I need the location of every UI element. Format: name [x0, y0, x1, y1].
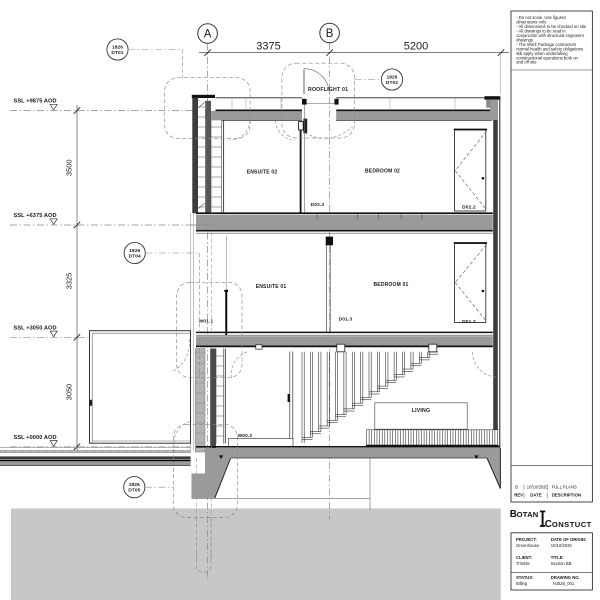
- svg-text:10/10/2020: 10/10/2020: [551, 543, 573, 548]
- svg-text:BEDROOM 01: BEDROOM 01: [373, 282, 408, 288]
- svg-text:FULL PLANS: FULL PLANS: [552, 485, 577, 490]
- svg-text:3375: 3375: [256, 40, 280, 52]
- svg-text:PROJECT:: PROJECT:: [516, 537, 537, 542]
- svg-text:SSL +9875 AOD: SSL +9875 AOD: [14, 99, 57, 105]
- svg-text:ENSUITE 02: ENSUITE 02: [247, 170, 278, 176]
- svg-text:C: C: [545, 519, 552, 530]
- svg-text:1826: 1826: [386, 74, 397, 80]
- svg-text:D01.2: D01.2: [462, 319, 476, 325]
- svg-text:LIVING: LIVING: [412, 408, 431, 414]
- svg-text:OTAN: OTAN: [517, 510, 539, 519]
- svg-text:Section BB: Section BB: [551, 561, 572, 566]
- svg-text:10/10/2020: 10/10/2020: [527, 485, 549, 490]
- svg-text:1826: 1826: [129, 248, 140, 254]
- svg-text:SSL +0000 AOD: SSL +0000 AOD: [14, 435, 57, 441]
- svg-text:SSL +3050 AOD: SSL +3050 AOD: [14, 325, 57, 331]
- svg-text:DESCRIPTION: DESCRIPTION: [552, 493, 581, 498]
- svg-text:DT01: DT01: [111, 50, 123, 56]
- svg-text:Billing: Billing: [516, 581, 528, 586]
- svg-text:ENSUITE 01: ENSUITE 01: [256, 284, 287, 290]
- svg-text:Trimble: Trimble: [516, 561, 530, 566]
- svg-text:1826: 1826: [129, 482, 140, 488]
- svg-text:3500: 3500: [65, 159, 74, 176]
- svg-text:3325: 3325: [65, 273, 74, 290]
- svg-text:DRAWING NO.: DRAWING NO.: [551, 575, 580, 580]
- svg-text:B: B: [326, 28, 334, 40]
- svg-text:D02.2: D02.2: [462, 204, 476, 210]
- svg-text:DT02: DT02: [386, 80, 398, 86]
- svg-text:and off site: and off site: [516, 60, 537, 65]
- svg-text:1826: 1826: [112, 44, 123, 50]
- svg-text:HJ026_001: HJ026_001: [553, 581, 575, 586]
- svg-text:BEDROOM 02: BEDROOM 02: [365, 168, 400, 174]
- svg-text:D01.3: D01.3: [339, 317, 353, 323]
- svg-text:CLIENT:: CLIENT:: [516, 555, 532, 560]
- svg-text:D02.3: D02.3: [311, 202, 325, 208]
- svg-text:STATUS:: STATUS:: [516, 575, 534, 580]
- svg-text:TITLE:: TITLE:: [551, 555, 564, 560]
- svg-text:A: A: [204, 29, 212, 41]
- svg-text:REV: REV: [514, 493, 523, 498]
- svg-text:DT04: DT04: [129, 253, 141, 259]
- svg-text:3050: 3050: [65, 384, 74, 401]
- svg-text:DT05: DT05: [128, 488, 140, 494]
- svg-text:ROOFLIGHT 01: ROOFLIGHT 01: [308, 87, 348, 93]
- svg-text:B: B: [515, 485, 518, 490]
- svg-text:Greenhouse: Greenhouse: [516, 543, 540, 548]
- svg-text:5200: 5200: [404, 40, 428, 52]
- svg-text:SSL +6375 AOD: SSL +6375 AOD: [14, 213, 57, 219]
- svg-text:ONSTUCT: ONSTUCT: [552, 520, 592, 529]
- svg-text:DATE OF ORIGIN:: DATE OF ORIGIN:: [551, 537, 587, 542]
- svg-text:DATE: DATE: [530, 493, 542, 498]
